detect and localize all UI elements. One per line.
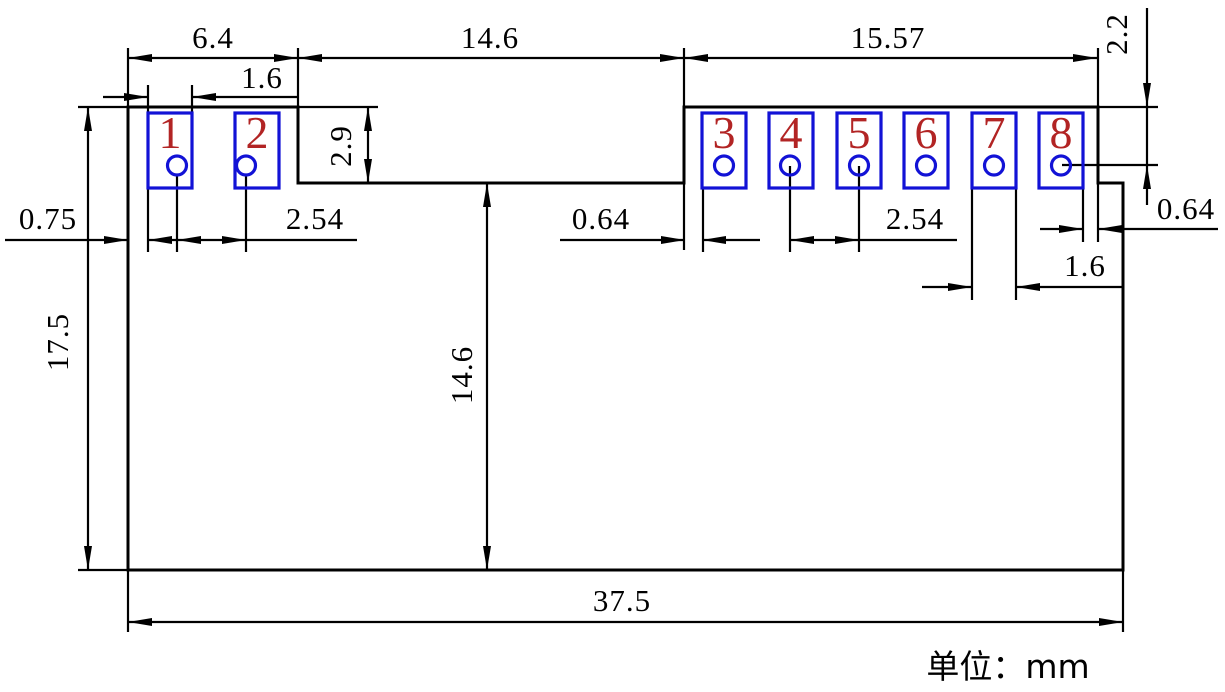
module-outline — [128, 107, 1123, 570]
dim-pad12-hole-pitch: 2.54 — [148, 201, 357, 244]
pad-1: 1 — [148, 107, 192, 188]
dim-label-pad1-width: 1.6 — [241, 60, 283, 95]
dim-label-notch-to-bottom: 14.6 — [444, 346, 479, 404]
pad-3-number: 3 — [713, 107, 736, 158]
dim-label-overall-height: 17.5 — [40, 313, 75, 371]
pad-1-hole — [168, 156, 187, 175]
pad-6-number: 6 — [915, 107, 938, 158]
pad-8: 8 — [1039, 107, 1083, 188]
dim-pad1-width: 1.6 — [103, 60, 298, 101]
dim-label-edge-to-pad1: 0.75 — [19, 201, 77, 236]
dim-label-notch-to-pad3: 0.64 — [572, 201, 630, 236]
pad-7-number: 7 — [983, 107, 1006, 158]
pad-4-number: 4 — [780, 107, 803, 158]
dim-label-pad8-to-edge: 0.64 — [1157, 191, 1215, 226]
dim-pad-row-depth: 2.9 — [323, 107, 372, 183]
dim-label-right-section-width: 15.57 — [851, 20, 926, 55]
dim-label-top-to-hole-center: 2.2 — [1099, 13, 1134, 55]
pcb-dimension-drawing: 1 2 3 4 5 6 7 — [0, 0, 1225, 692]
pad-3-hole — [715, 156, 734, 175]
dim-label-pad12-hole-pitch: 2.54 — [286, 201, 344, 236]
dim-overall-height: 17.5 — [40, 107, 92, 570]
pad-2-hole — [237, 156, 256, 175]
drawing-canvas: 1 2 3 4 5 6 7 — [0, 0, 1225, 692]
pad-8-number: 8 — [1050, 107, 1073, 158]
dim-right-section-width: 15.57 — [684, 20, 1097, 62]
pad-2: 2 — [235, 107, 279, 188]
pad-7-hole — [985, 156, 1004, 175]
pad-4: 4 — [769, 107, 813, 188]
pad-6-hole — [917, 156, 936, 175]
dim-label-pad-row-depth: 2.9 — [323, 125, 358, 167]
dim-notch-width: 14.6 — [298, 20, 684, 62]
dim-notch-to-bottom: 14.6 — [444, 183, 491, 570]
dim-pad45-hole-pitch: 2.54 — [790, 201, 957, 244]
pad-6: 6 — [904, 107, 948, 188]
pad-7: 7 — [972, 107, 1016, 188]
dim-label-overall-width: 37.5 — [593, 583, 651, 618]
dim-pad8-to-edge: 0.64 — [1040, 191, 1218, 233]
dim-label-left-section-width: 6.4 — [192, 20, 234, 55]
pad-3: 3 — [702, 107, 746, 188]
pad-1-number: 1 — [159, 107, 182, 158]
pad-5: 5 — [837, 107, 881, 188]
pad-2-number: 2 — [246, 107, 269, 158]
dim-label-notch-width: 14.6 — [461, 20, 519, 55]
pad-5-number: 5 — [848, 107, 871, 158]
unit-note: 单位：mm — [926, 647, 1089, 686]
dim-notch-to-pad3: 0.64 — [560, 201, 760, 244]
dim-pad7-width: 1.6 — [922, 248, 1123, 291]
dim-overall-width: 37.5 — [128, 583, 1123, 626]
pad-row: 1 2 3 4 5 6 7 — [148, 107, 1083, 188]
dim-left-section-width: 6.4 — [128, 20, 298, 62]
dim-label-pad45-hole-pitch: 2.54 — [886, 201, 944, 236]
dim-label-pad7-width: 1.6 — [1064, 248, 1106, 283]
